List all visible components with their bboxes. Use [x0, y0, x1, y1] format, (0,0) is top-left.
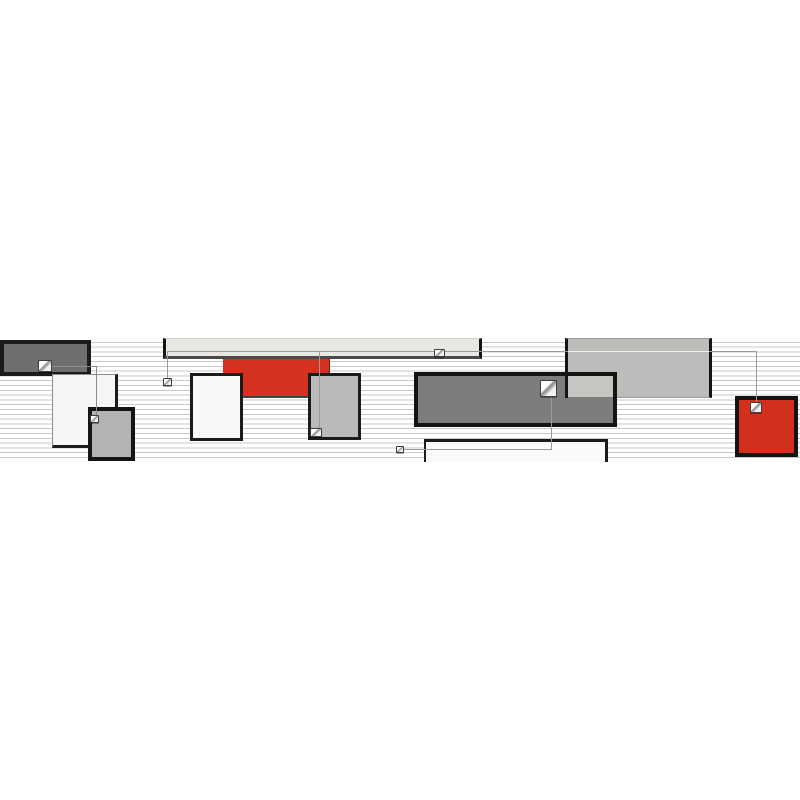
page-icon-gray-mid [310, 428, 322, 437]
connector-v-through-red [319, 351, 320, 430]
connector-h-bottom [403, 449, 552, 450]
patch-overlap-light [567, 376, 613, 397]
page-icon-below-bar [163, 378, 172, 386]
image-frame [0, 0, 800, 800]
page-icon-dark-center [540, 380, 557, 397]
page-icon-red-right [750, 402, 762, 413]
connector-v-to-red-square [756, 351, 757, 404]
page-icon-bottom-left [396, 446, 404, 453]
page-icon-gray-small-left [90, 415, 99, 423]
page-icon-dark-topleft [38, 360, 52, 372]
connector-h-main-light-segment [568, 351, 709, 352]
connector-h-left [52, 366, 96, 367]
page-icon-in-bar [434, 349, 445, 357]
connector-v-center-down [551, 396, 552, 450]
connector-v-left [96, 366, 97, 416]
rect-red-right [735, 396, 798, 457]
connector-v-band-left [167, 351, 168, 379]
artwork-canvas [0, 0, 800, 800]
rect-white-bottom [424, 439, 608, 462]
rect-white-mid [190, 373, 243, 441]
edge-overlay-dark [565, 372, 568, 398]
